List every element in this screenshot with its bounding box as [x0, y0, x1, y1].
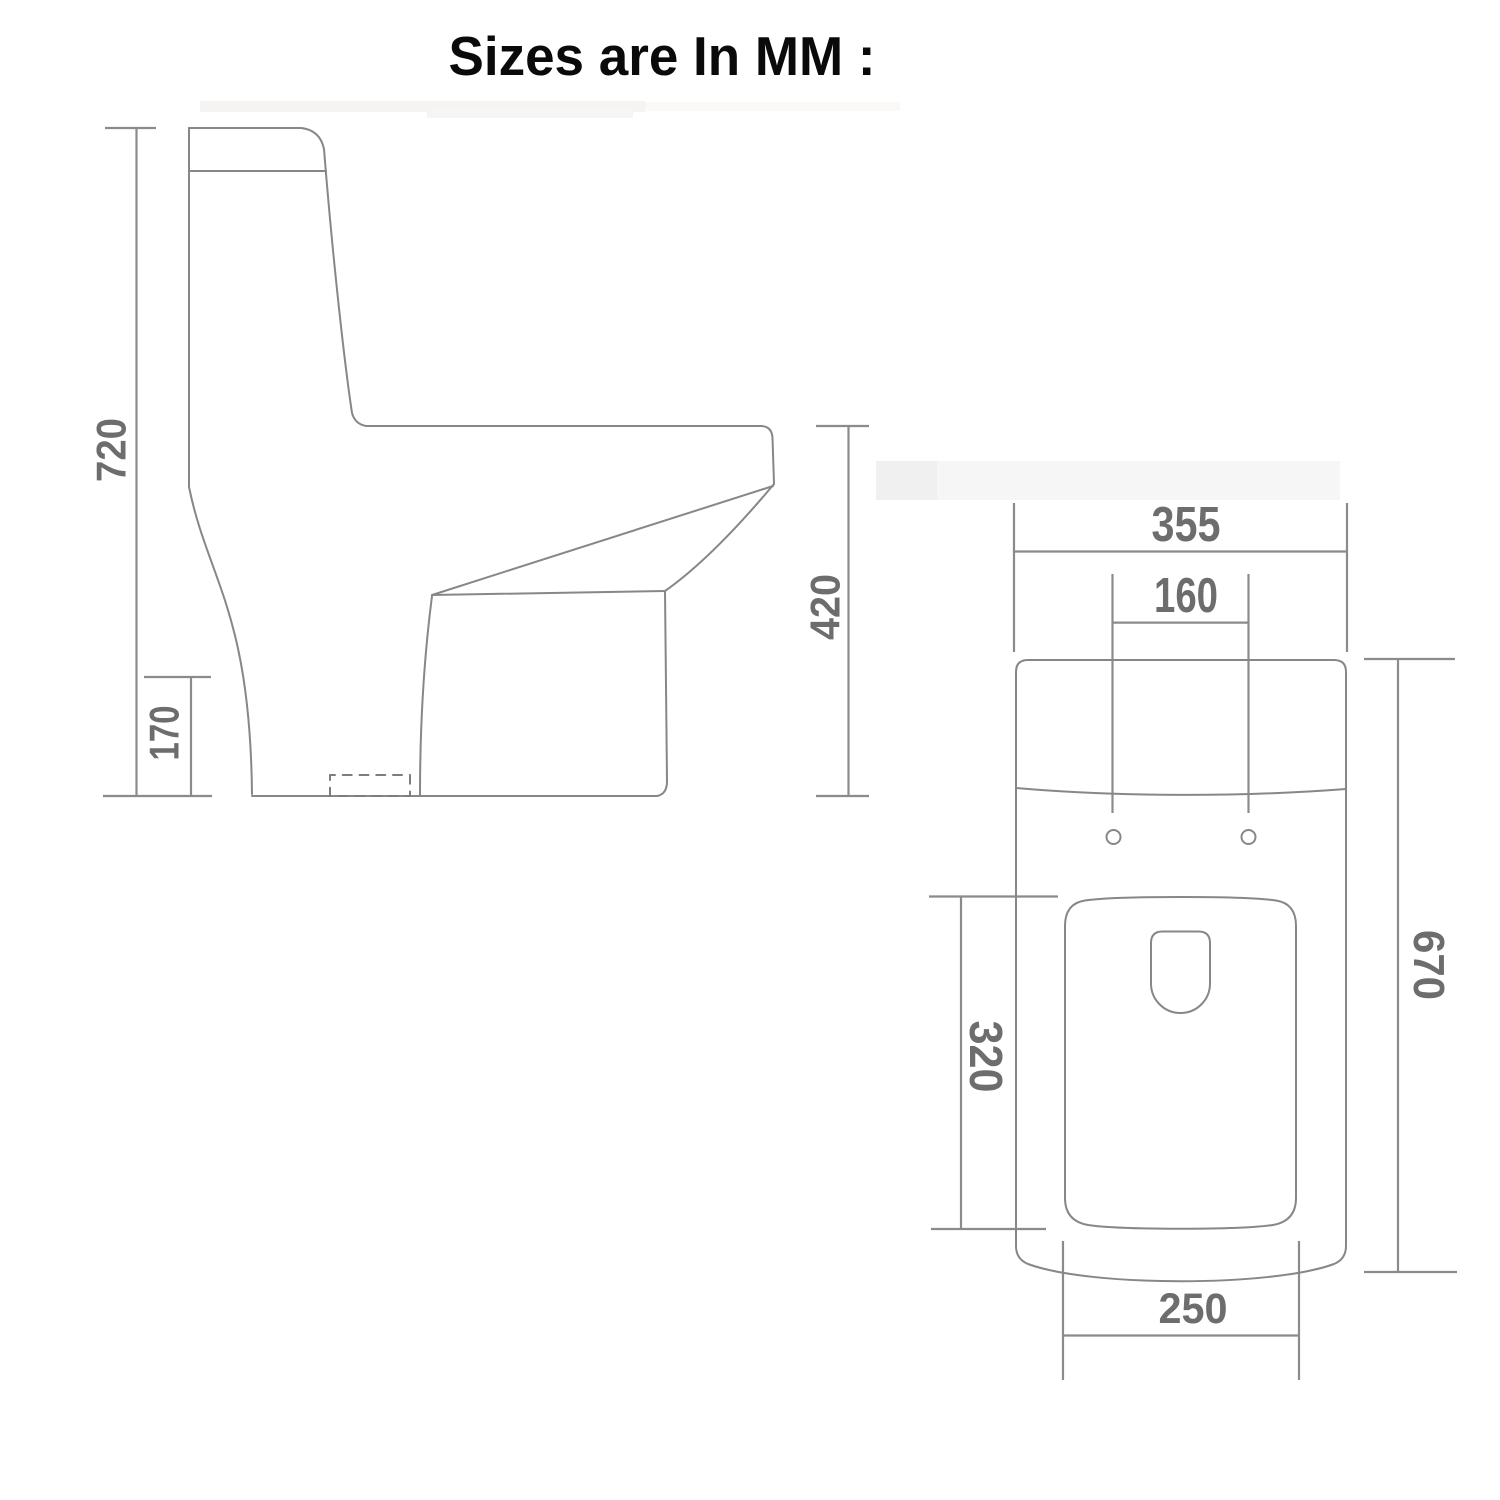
svg-text:160: 160	[1154, 569, 1218, 623]
svg-text:Sizes are In MM :: Sizes are In MM :	[449, 25, 876, 87]
svg-text:720: 720	[88, 418, 135, 482]
svg-text:670: 670	[1404, 930, 1453, 1000]
svg-text:170: 170	[141, 706, 188, 761]
svg-text:355: 355	[1152, 498, 1221, 552]
svg-text:420: 420	[802, 574, 849, 640]
svg-text:320: 320	[960, 1021, 1012, 1093]
svg-text:250: 250	[1159, 1285, 1228, 1333]
